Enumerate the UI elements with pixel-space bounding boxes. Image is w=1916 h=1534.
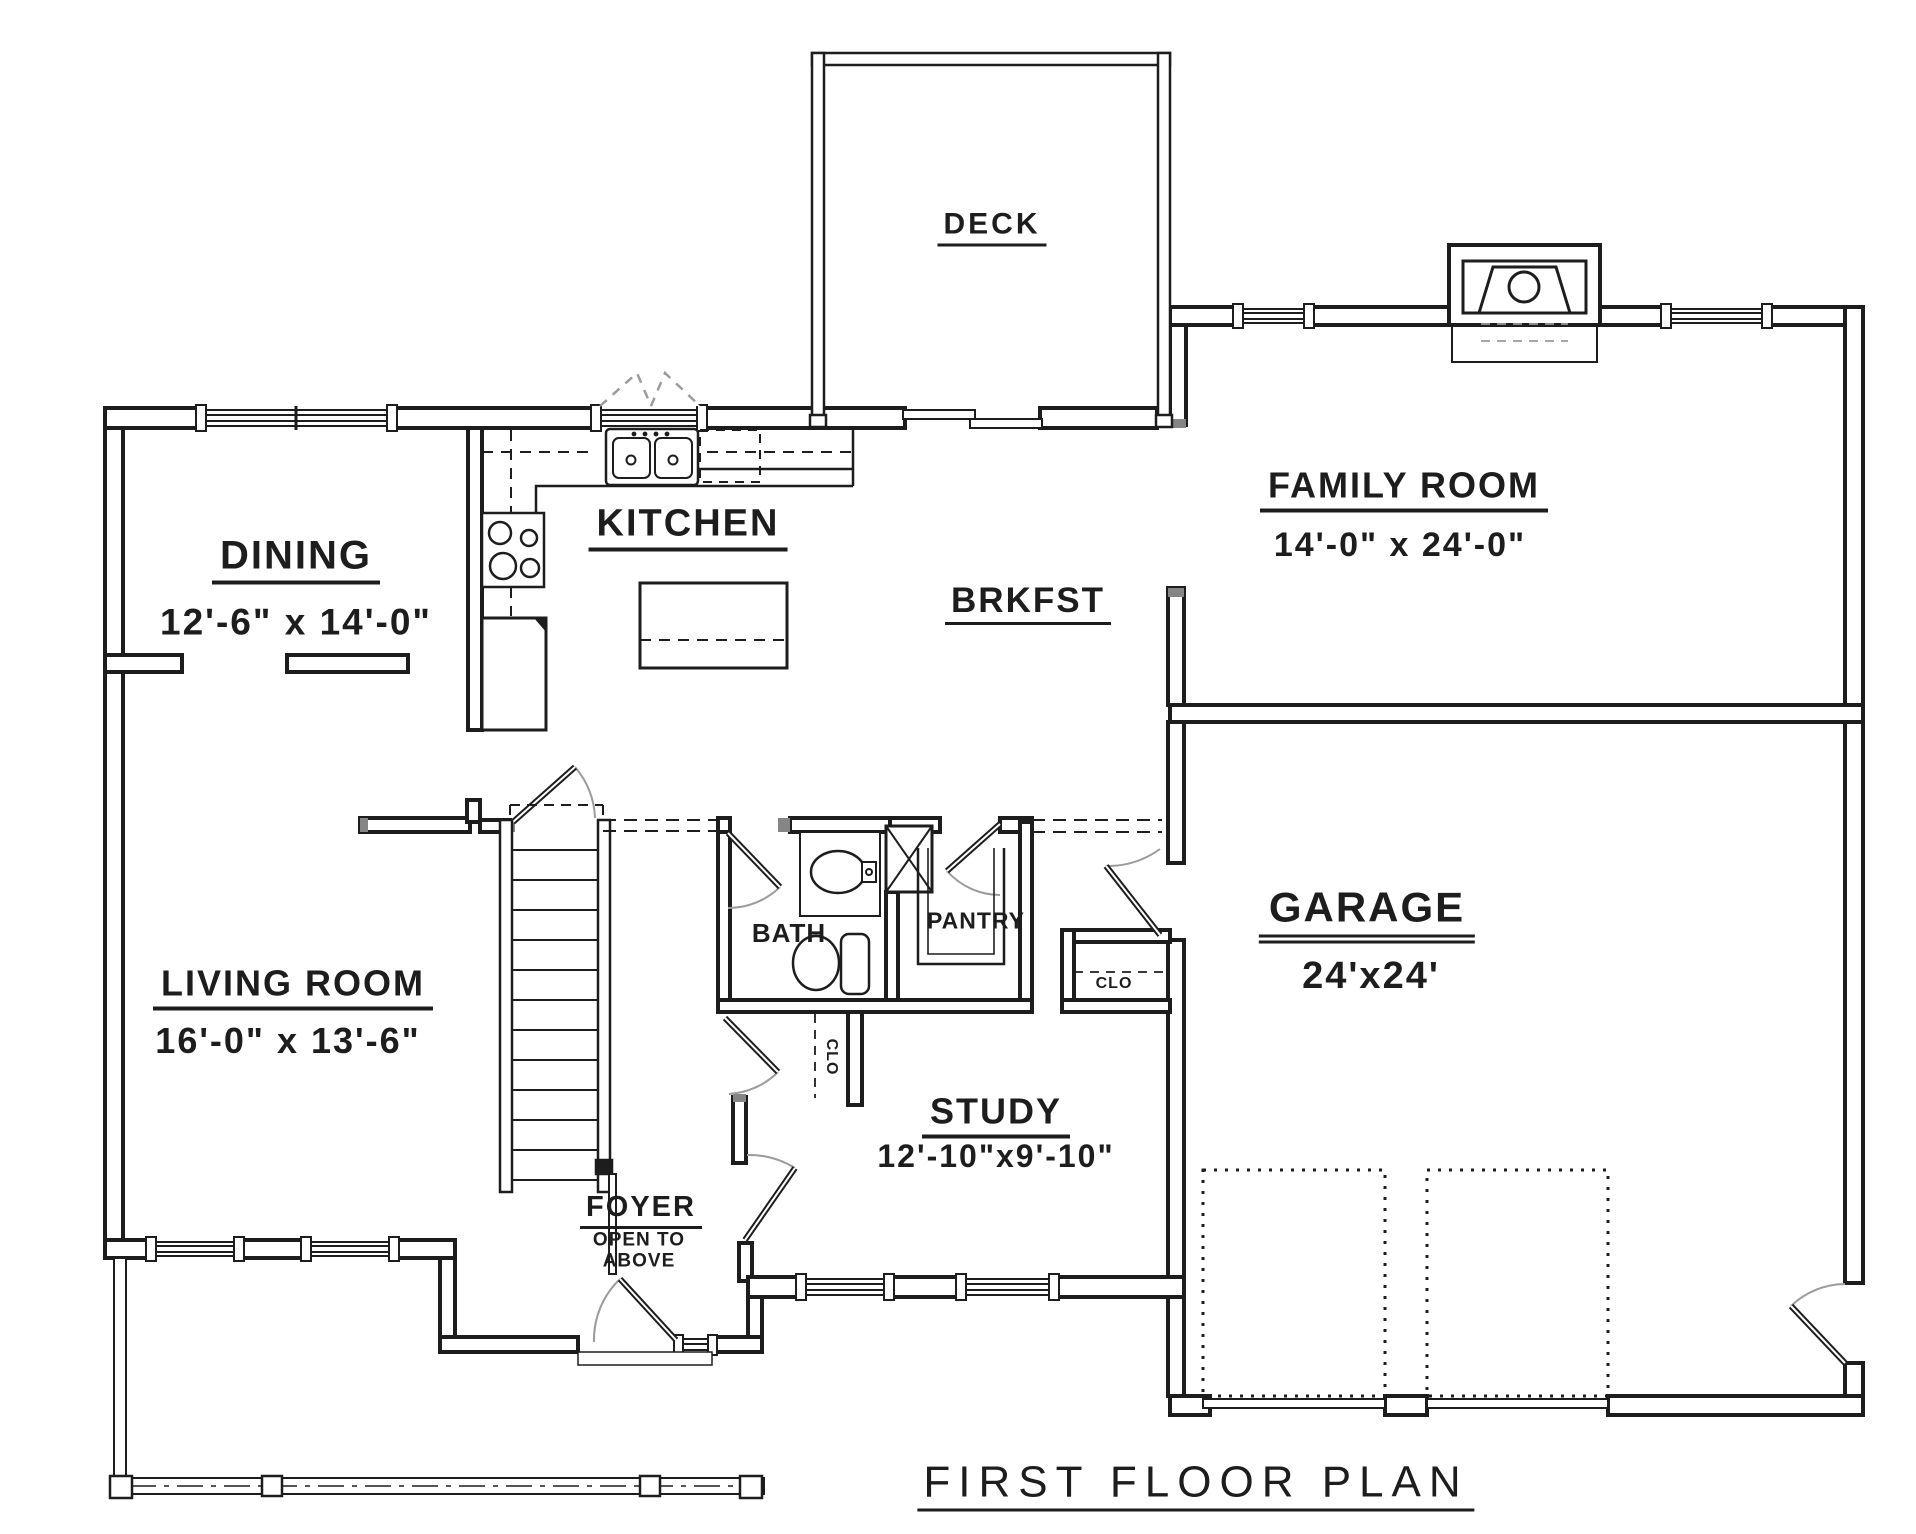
room-label-study: STUDY xyxy=(922,1094,1070,1139)
room-dims-family-room: 14'-0" x 24'-0" xyxy=(1274,528,1526,562)
door-stair-closet xyxy=(513,767,595,822)
room-label-kitchen: KITCHEN xyxy=(589,505,788,552)
room-label-brkfst: BRKFST xyxy=(945,583,1111,625)
door-bath xyxy=(728,833,780,908)
front-stoop xyxy=(578,1352,712,1365)
room-label-bath: BATH xyxy=(752,920,826,946)
room-dims-garage: 24'x24' xyxy=(1302,957,1440,995)
room-label-pantry: PANTRY xyxy=(927,910,1025,933)
window-study-right xyxy=(956,1274,1059,1300)
room-label-garage: GARAGE xyxy=(1259,887,1475,944)
kitchen-sink xyxy=(606,429,698,485)
window-dining xyxy=(196,405,397,431)
window-living-left xyxy=(146,1237,244,1261)
room-dims-dining: 12'-6" x 14'-0" xyxy=(160,604,432,641)
room-label-family-room: FAMILY ROOM xyxy=(1260,468,1548,513)
shower-chase xyxy=(886,826,932,892)
foyer-note-line1: OPEN TO xyxy=(593,1231,685,1250)
room-label-closet-hall: CLO xyxy=(1096,976,1133,992)
door-foyer-closet xyxy=(725,1018,778,1094)
room-label-deck: DECK xyxy=(937,210,1046,247)
page-title: FIRST FLOOR PLAN xyxy=(917,1461,1474,1512)
door-study xyxy=(745,1155,795,1240)
bath-vanity xyxy=(800,832,880,916)
door-pantry xyxy=(947,824,1000,895)
porch xyxy=(110,1258,764,1498)
foyer-note-line2: ABOVE xyxy=(603,1252,676,1271)
window-family-left xyxy=(1233,304,1314,328)
kitchen-island xyxy=(640,583,787,668)
floor-plan: DECK DINING 12'-6" x 14'-0" KITCHEN BRKF… xyxy=(0,0,1916,1534)
room-dims-study: 12'-10"x9'-10" xyxy=(877,1140,1114,1172)
window-study-left xyxy=(796,1274,894,1300)
stove xyxy=(482,513,544,587)
room-label-closet-foyer: CLO xyxy=(823,1039,839,1076)
sliding-door-deck xyxy=(903,410,1042,428)
fireplace xyxy=(1449,245,1600,362)
room-label-living-room: LIVING ROOM xyxy=(153,966,433,1011)
window-kitchen-sink xyxy=(591,373,707,431)
door-garage-entry xyxy=(1106,849,1160,935)
door-garage-service xyxy=(1791,1284,1845,1363)
room-label-dining: DINING xyxy=(212,536,380,585)
window-family-right xyxy=(1661,304,1772,328)
window-living-right xyxy=(301,1237,399,1261)
refrigerator xyxy=(482,618,546,730)
door-front-entry xyxy=(594,1279,676,1342)
room-label-foyer: FOYER xyxy=(580,1193,702,1229)
room-dims-living-room: 16'-0" x 13'-6" xyxy=(155,1023,420,1059)
garage-parking-bays xyxy=(1203,1170,1608,1396)
